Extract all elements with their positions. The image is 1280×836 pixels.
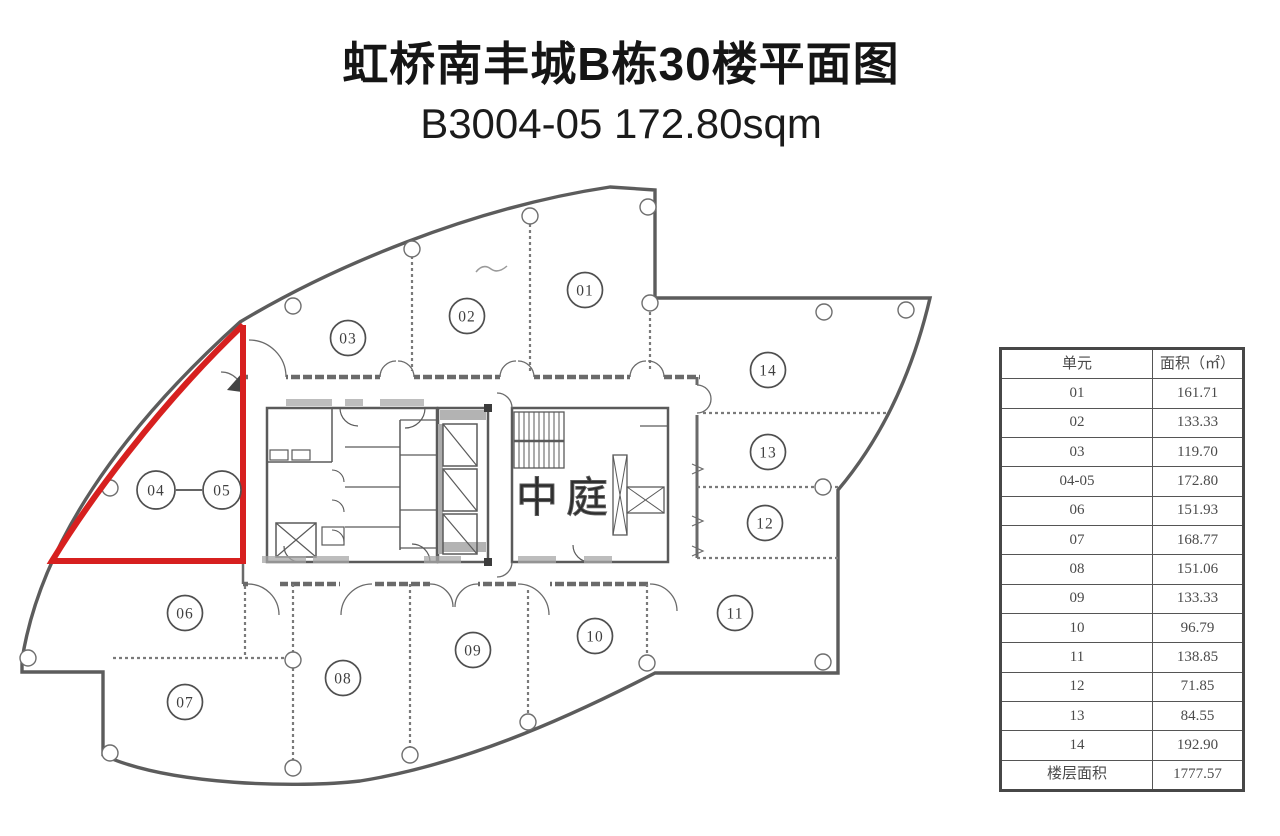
table-row: 1271.85 [1001, 672, 1244, 701]
unit-cell: 08 [1001, 555, 1153, 584]
svg-text:03: 03 [339, 331, 357, 348]
floor-total-area-cell: 1777.57 [1153, 760, 1244, 790]
table-row: 04-05172.80 [1001, 467, 1244, 496]
unit-cell: 06 [1001, 496, 1153, 525]
core-service-block [267, 408, 437, 562]
area-cell: 151.93 [1153, 496, 1244, 525]
table-row: 09133.33 [1001, 584, 1244, 613]
area-table: 单元 面积（㎡） 01161.71 02133.33 03119.70 04-0… [999, 347, 1245, 792]
table-row total-row: 楼层面积1777.57 [1001, 760, 1244, 790]
svg-text:14: 14 [759, 363, 777, 380]
table-row: 07168.77 [1001, 525, 1244, 554]
table-row: 14192.90 [1001, 731, 1244, 760]
unit-cell: 02 [1001, 408, 1153, 437]
area-cell: 138.85 [1153, 643, 1244, 672]
area-cell: 71.85 [1153, 672, 1244, 701]
unit-cell: 11 [1001, 643, 1153, 672]
area-column-header: 面积（㎡） [1153, 349, 1244, 379]
table-row: 01161.71 [1001, 379, 1244, 408]
unit-cell: 14 [1001, 731, 1153, 760]
area-cell: 96.79 [1153, 613, 1244, 642]
area-cell: 151.06 [1153, 555, 1244, 584]
svg-text:10: 10 [586, 629, 604, 646]
svg-text:02: 02 [458, 309, 476, 326]
table-row: 03119.70 [1001, 438, 1244, 467]
atrium-block: 中庭 [512, 408, 668, 562]
svg-text:11: 11 [727, 606, 744, 623]
elevator-bank [438, 404, 492, 566]
area-cell: 133.33 [1153, 408, 1244, 437]
svg-text:04: 04 [147, 483, 165, 500]
svg-text:09: 09 [464, 643, 482, 660]
table-row: 06151.93 [1001, 496, 1244, 525]
floor-total-label-cell: 楼层面积 [1001, 760, 1153, 790]
unit-column-header: 单元 [1001, 349, 1153, 379]
unit-cell: 01 [1001, 379, 1153, 408]
area-cell: 119.70 [1153, 438, 1244, 467]
svg-text:12: 12 [756, 516, 774, 533]
svg-text:06: 06 [176, 606, 194, 623]
atrium-label: 中庭 [516, 475, 616, 522]
svg-text:13: 13 [759, 445, 777, 462]
area-cell: 192.90 [1153, 731, 1244, 760]
unit-cell: 07 [1001, 525, 1153, 554]
table-row: 11138.85 [1001, 643, 1244, 672]
unit-cell: 09 [1001, 584, 1153, 613]
table-row: 08151.06 [1001, 555, 1244, 584]
unit-cell: 04-05 [1001, 467, 1153, 496]
svg-text:01: 01 [576, 283, 594, 300]
area-cell: 84.55 [1153, 701, 1244, 730]
unit-cell: 10 [1001, 613, 1153, 642]
floor-plan-drawing: 中庭 [0, 0, 960, 836]
svg-text:07: 07 [176, 695, 194, 712]
area-cell: 133.33 [1153, 584, 1244, 613]
table-row: 1384.55 [1001, 701, 1244, 730]
area-cell: 161.71 [1153, 379, 1244, 408]
floor-plan-page: 虹桥南丰城B栋30楼平面图 B3004-05 172.80sqm [0, 0, 1280, 836]
unit-cell: 03 [1001, 438, 1153, 467]
table-row: 1096.79 [1001, 613, 1244, 642]
svg-text:08: 08 [334, 671, 352, 688]
area-cell: 168.77 [1153, 525, 1244, 554]
unit-cell: 13 [1001, 701, 1153, 730]
svg-text:05: 05 [213, 483, 231, 500]
area-table-header-row: 单元 面积（㎡） [1001, 349, 1244, 379]
area-cell: 172.80 [1153, 467, 1244, 496]
table-row: 02133.33 [1001, 408, 1244, 437]
unit-cell: 12 [1001, 672, 1153, 701]
